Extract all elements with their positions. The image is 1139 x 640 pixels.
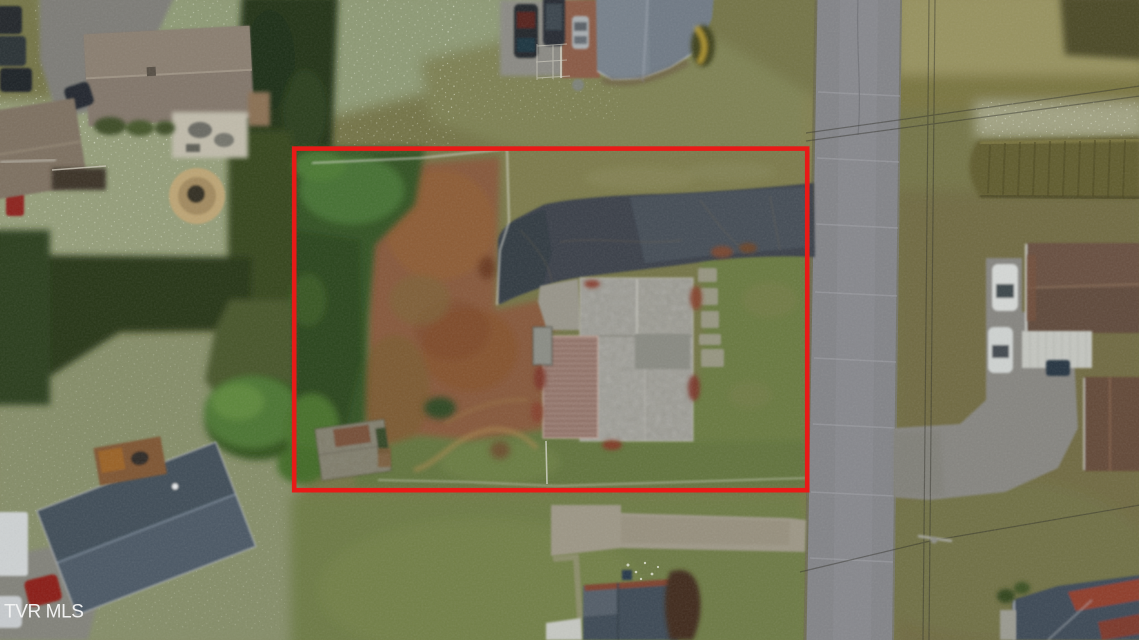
svg-text:TVR MLS: TVR MLS	[4, 602, 84, 623]
